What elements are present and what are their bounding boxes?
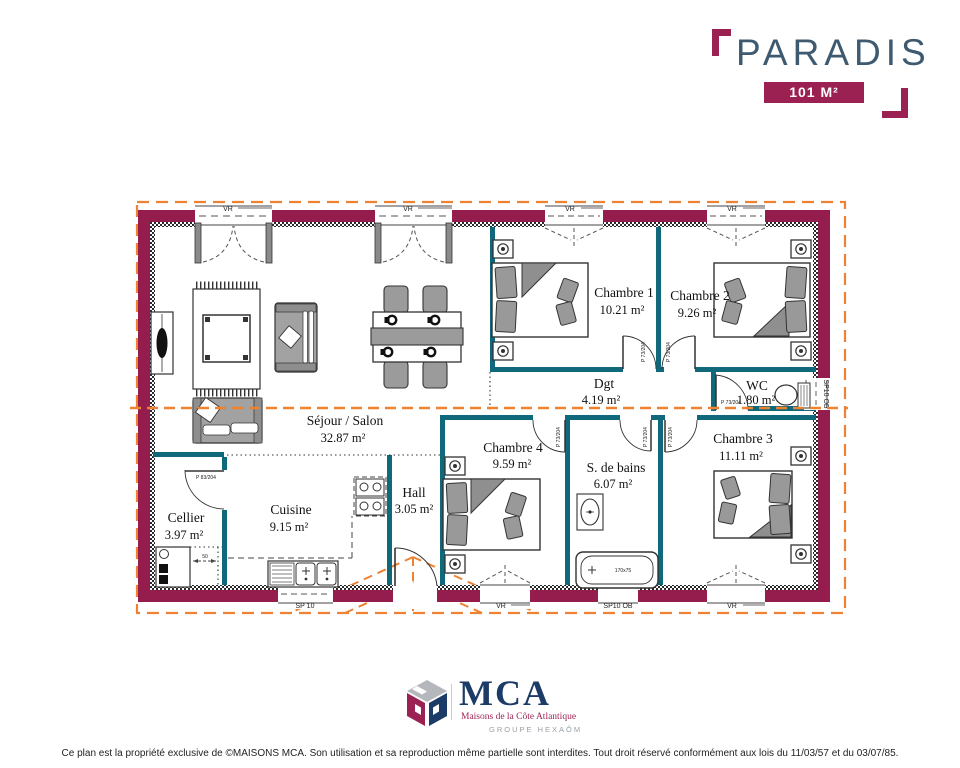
svg-text:Chambre 3: Chambre 3	[713, 431, 773, 446]
window-sejour-right: VR	[375, 204, 452, 263]
door-label: P 83/204	[196, 475, 216, 481]
brand-name: MCA	[459, 672, 551, 714]
dimension-label: 50	[202, 554, 208, 560]
rug	[193, 285, 260, 393]
room-cellier: Cellier 3.97 m²	[165, 510, 205, 542]
svg-text:Chambre 2: Chambre 2	[670, 288, 730, 303]
window-chambre1: VR	[545, 204, 603, 246]
svg-text:3.05 m²: 3.05 m²	[395, 502, 434, 516]
room-hall: Hall 3.05 m²	[395, 485, 434, 516]
room-wc: WC 1.80 m²	[737, 378, 776, 407]
window-label: SP10 OB	[822, 379, 829, 409]
room-sejour-salon: Séjour / Salon 32.87 m²	[307, 413, 384, 445]
svg-text:Cuisine: Cuisine	[270, 502, 311, 517]
window-label: VR	[727, 206, 737, 213]
window-sejour-left: VR	[195, 204, 272, 263]
window-label: SP10 OB	[603, 603, 633, 610]
svg-text:S. de bains: S. de bains	[587, 460, 646, 475]
bathtub: 170x75	[576, 552, 658, 588]
svg-text:9.15 m²: 9.15 m²	[270, 520, 309, 534]
copyright-disclaimer: Ce plan est la propriété exclusive de ©M…	[0, 748, 960, 759]
window-chambre2: VR	[707, 204, 765, 246]
svg-text:3.97 m²: 3.97 m²	[165, 528, 204, 542]
floor-plan-page: PARADIS 101 M²	[0, 0, 960, 768]
svg-text:9.59 m²: 9.59 m²	[493, 457, 532, 471]
bathtub-size-label: 170x75	[615, 568, 632, 574]
svg-text:4.19 m²: 4.19 m²	[582, 393, 621, 407]
svg-text:Chambre 1: Chambre 1	[594, 285, 654, 300]
room-chambre1: Chambre 1 10.21 m²	[594, 285, 654, 317]
svg-text:10.21 m²: 10.21 m²	[600, 303, 645, 317]
svg-text:32.87 m²: 32.87 m²	[321, 431, 366, 445]
window-label: VR	[727, 603, 737, 610]
svg-text:Dgt: Dgt	[594, 376, 614, 391]
water-heater: 50	[156, 547, 216, 587]
console-table	[151, 312, 173, 374]
mca-logo-cube-icon	[405, 678, 449, 730]
furniture-chambre3	[714, 447, 811, 563]
svg-text:9.26 m²: 9.26 m²	[678, 306, 717, 320]
furniture-chambre4	[443, 457, 540, 573]
svg-text:6.07 m²: 6.07 m²	[594, 477, 633, 491]
floor-plan: VR VR VR	[0, 0, 960, 768]
door-label: P 73/204	[668, 427, 674, 447]
loveseat	[275, 303, 317, 372]
room-chambre3: Chambre 3 11.11 m²	[713, 431, 773, 463]
svg-text:1.80 m²: 1.80 m²	[737, 393, 776, 407]
door-label: P 73/204	[666, 342, 672, 362]
window-label: VR	[565, 206, 575, 213]
sofa	[193, 397, 262, 443]
window-label: VR	[403, 206, 413, 213]
door-label: P 73/204	[556, 427, 562, 447]
door-label: P 73/204	[641, 342, 647, 362]
toilet	[775, 383, 810, 408]
room-chambre4: Chambre 4 9.59 m²	[483, 440, 543, 471]
room-dgt: Dgt 4.19 m²	[582, 376, 621, 407]
logo-divider	[451, 684, 452, 720]
brand-group: GROUPE HEXAÔM	[489, 725, 582, 734]
brand-subtitle: Maisons de la Côte Atlantique	[461, 712, 576, 722]
bathroom-sink	[577, 494, 603, 530]
svg-text:Chambre 4: Chambre 4	[483, 440, 543, 455]
svg-text:Séjour / Salon: Séjour / Salon	[307, 413, 384, 428]
window-chambre4: VR	[480, 565, 530, 610]
room-sdb: S. de bains 6.07 m²	[587, 460, 646, 491]
furniture-chambre1	[492, 240, 588, 360]
kitchen-sink	[268, 561, 338, 587]
mca-logo: MCA Maisons de la Côte Atlantique GROUPE…	[405, 676, 665, 736]
svg-text:Cellier: Cellier	[168, 510, 205, 525]
window-label: VR	[496, 603, 506, 610]
window-label: SP 10	[296, 603, 315, 610]
svg-text:Hall: Hall	[402, 485, 425, 500]
svg-text:WC: WC	[746, 378, 768, 393]
room-cuisine: Cuisine 9.15 m²	[270, 502, 312, 534]
door-chambre1	[623, 336, 656, 373]
dining-set	[371, 286, 463, 388]
door-label: P 73/204	[643, 427, 649, 447]
window-chambre3: VR	[707, 565, 765, 610]
svg-text:11.11 m²: 11.11 m²	[719, 449, 763, 463]
window-label: VR	[223, 206, 233, 213]
